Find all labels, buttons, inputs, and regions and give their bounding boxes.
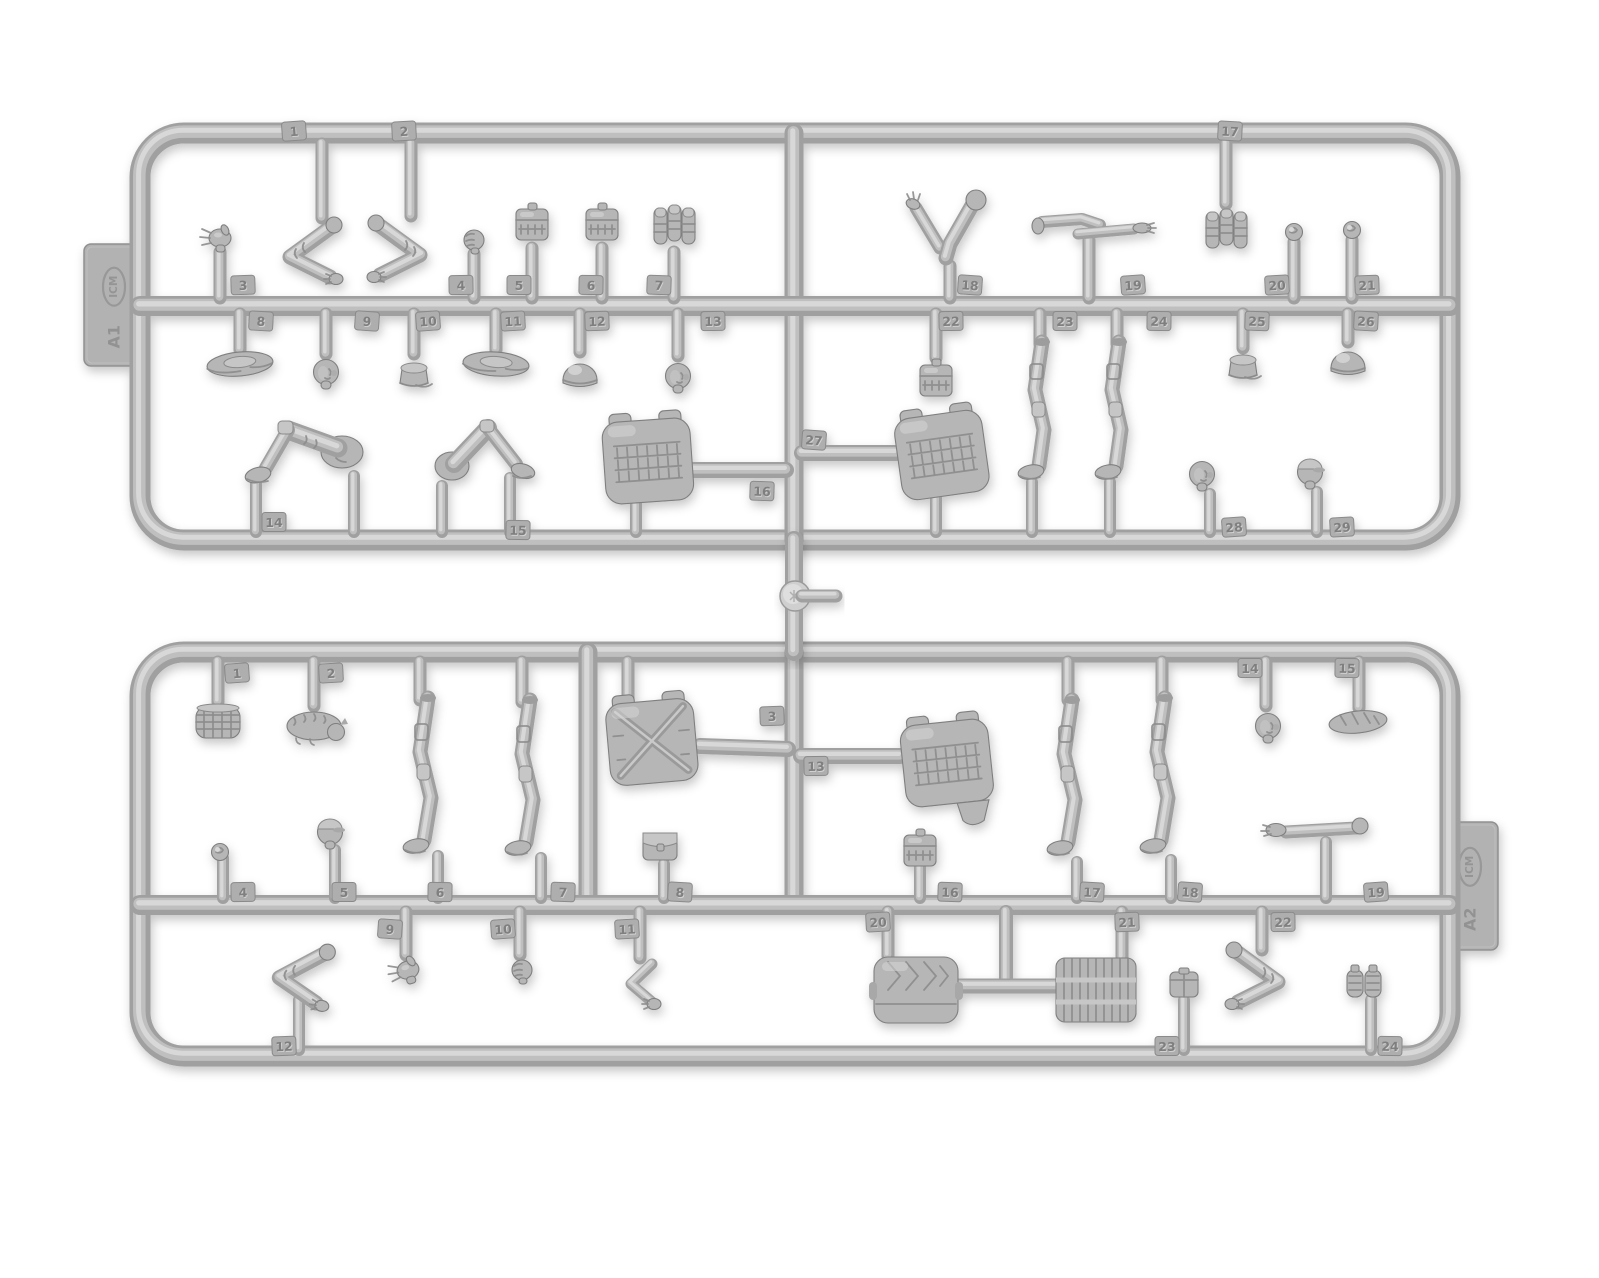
part-number: 5 [340, 885, 349, 900]
part-number-tag: 88 [668, 882, 693, 902]
part-number-tag: 1111 [615, 919, 640, 939]
part-number: 14 [1241, 661, 1259, 676]
part-number-tag: 2424 [1147, 311, 1171, 330]
part-number: 14 [265, 515, 283, 530]
part-number: 28 [1225, 519, 1243, 535]
part-number: 12 [588, 314, 606, 330]
part-number-tag: 2929 [1330, 517, 1355, 537]
part-number-tag: 33 [231, 275, 256, 295]
part-number: 9 [385, 922, 395, 938]
part-number: 10 [494, 921, 513, 937]
part-number-tag: 2020 [866, 912, 891, 932]
part-number: 18 [1181, 884, 1199, 900]
sprue-photo: ICMA111223344556677889910101111121213131… [0, 0, 1599, 1278]
part-number: 11 [618, 921, 636, 937]
part-number-tag: 2727 [801, 430, 826, 451]
part-number-tag: 11 [224, 663, 249, 684]
part-number: 13 [807, 759, 825, 774]
brand-text: ICM [108, 276, 120, 298]
part-number-tag: 55 [332, 883, 356, 902]
part-number-tag: 44 [231, 882, 255, 901]
part-number: 22 [1274, 915, 1292, 930]
part-number: 4 [457, 278, 466, 293]
sprue-id-label: A2 [1461, 908, 1480, 932]
part-number: 19 [1367, 884, 1385, 900]
part-number: 11 [504, 313, 522, 329]
part-number: 18 [961, 277, 979, 293]
part-number-tag: 77 [551, 882, 576, 902]
part-number-tag: 1414 [262, 513, 286, 532]
part-number-tag: 1010 [415, 311, 440, 332]
part-number-tag: 1212 [585, 311, 610, 331]
part-number-tag: 1010 [490, 919, 515, 940]
part-number-tag: 22 [392, 121, 417, 141]
part-number: 23 [1056, 314, 1073, 329]
part-number: 16 [753, 484, 771, 500]
part-number: 17 [1221, 123, 1239, 139]
part-number-tag: 1717 [1080, 882, 1105, 902]
part-number-tag: 66 [579, 275, 603, 294]
part-number: 6 [436, 885, 445, 900]
part-number: 29 [1333, 519, 1351, 535]
part-number-tag: 1313 [701, 311, 725, 330]
part-number-tag: 1919 [1120, 275, 1145, 296]
part-number-tag: 2323 [1155, 1037, 1179, 1056]
part-number-tag: 2424 [1378, 1036, 1402, 1055]
part-number: 25 [1248, 314, 1266, 330]
part-number: 10 [419, 313, 438, 329]
sprue-runner-rail [587, 650, 588, 905]
part-number-tag: 2222 [939, 311, 963, 330]
part-number-tag: 2020 [1265, 275, 1290, 295]
sprue-runner-rail [793, 131, 794, 540]
part-number-tag: 11 [281, 121, 306, 142]
part-number: 24 [1150, 314, 1168, 329]
part-number: 2 [399, 124, 408, 139]
part-number-tag: 2828 [1221, 517, 1246, 538]
part-number: 22 [942, 314, 960, 329]
part-number: 7 [654, 278, 663, 293]
part-number: 9 [362, 314, 372, 330]
sprue-id-label: A1 [105, 325, 124, 349]
part-number-tag: 99 [354, 311, 379, 332]
sprue-scene: ICMA111223344556677889910101111121213131… [0, 0, 1599, 1278]
part-number-tag: 2626 [1354, 311, 1379, 331]
part-number: 17 [1083, 884, 1101, 900]
sprue-photo-canvas: ICMA111223344556677889910101111121213131… [0, 0, 1599, 1278]
part-number: 21 [1358, 278, 1376, 294]
part-number: 16 [941, 885, 959, 901]
part-number-tag: 2121 [1355, 275, 1380, 295]
part-number: 2 [326, 666, 335, 681]
part-number-tag: 33 [760, 706, 785, 726]
part-number: 19 [1124, 277, 1142, 293]
part-number-tag: 2525 [1245, 311, 1270, 331]
part-number: 1 [232, 666, 242, 682]
part-number: 24 [1381, 1039, 1399, 1054]
part-number-tag: 2222 [1271, 912, 1295, 931]
part-number-tag: 1818 [957, 275, 982, 296]
part-number: 6 [587, 278, 596, 293]
part-number-tag: 1616 [938, 882, 963, 902]
part-number-tag: 1515 [506, 520, 530, 539]
part-number: 15 [1338, 661, 1356, 676]
part-number: 3 [238, 278, 247, 293]
part-number-tag: 2323 [1053, 312, 1077, 331]
part-number: 21 [1118, 915, 1136, 931]
part-number: 27 [805, 432, 823, 448]
part-number-tag: 1313 [804, 756, 828, 775]
part-number: 13 [704, 314, 722, 329]
part-number: 4 [239, 885, 248, 900]
sprue-runner-rail [793, 650, 794, 905]
part-number-tag: 99 [377, 919, 402, 940]
part-number: 3 [767, 709, 776, 724]
part-number-tag: 77 [647, 275, 672, 295]
part-number: 20 [869, 914, 887, 930]
part-number-tag: 1515 [1335, 658, 1359, 677]
part-number-tag: 55 [507, 276, 531, 295]
part-number-tag: 1212 [272, 1036, 297, 1056]
part-number-tag: 66 [428, 882, 452, 901]
part-number-tag: 1616 [750, 481, 775, 501]
part-number-tag: 88 [249, 311, 274, 331]
part-number: 26 [1357, 313, 1375, 329]
sprue-runner-rail [139, 304, 1450, 306]
part-number-tag: 1717 [1218, 121, 1243, 141]
part-number: 5 [515, 278, 524, 293]
part-number: 8 [675, 885, 684, 900]
part-number-tag: 1818 [1177, 882, 1202, 903]
part-number: 7 [558, 885, 567, 900]
part-number: 8 [256, 314, 265, 329]
part-number-tag: 22 [319, 663, 344, 683]
part-number: 1 [289, 124, 299, 140]
part-number-tag: 1414 [1238, 659, 1262, 678]
part-number-tag: 44 [449, 275, 473, 294]
part-number-tag: 1111 [501, 311, 526, 331]
part-number: 15 [509, 523, 527, 538]
part-number: 23 [1158, 1039, 1175, 1054]
part-number-tag: 1919 [1363, 882, 1388, 903]
part-number-tag: 2121 [1115, 912, 1140, 932]
part-number: 20 [1268, 277, 1286, 293]
brand-text: ICM [1464, 856, 1476, 878]
part-number: 12 [275, 1039, 293, 1055]
